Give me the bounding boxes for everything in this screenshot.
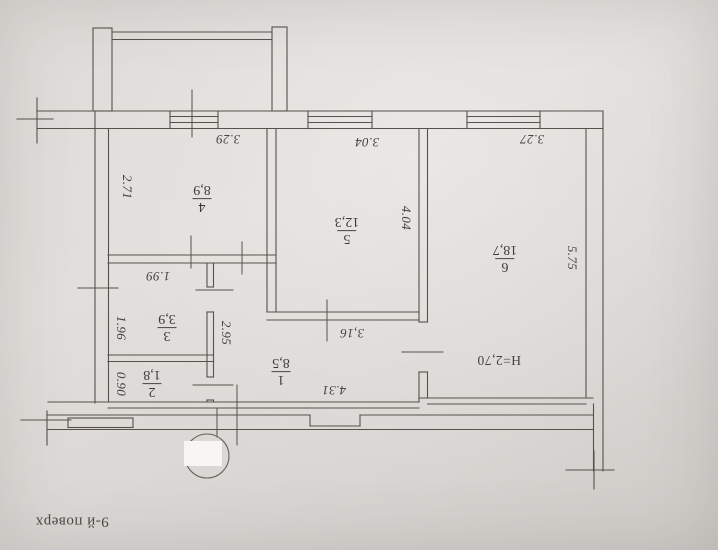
- balcony: [93, 27, 287, 111]
- dim-4-31: 4.31: [322, 382, 346, 398]
- dim-3-04: 3.04: [355, 134, 379, 150]
- room-1-number: 1: [272, 371, 291, 387]
- top-wall: [17, 98, 603, 143]
- dim-3-27: 3.27: [520, 131, 544, 147]
- plan-linework: [0, 0, 718, 550]
- room-4-area: 8,9: [193, 182, 211, 198]
- right-wall: [566, 111, 614, 489]
- room-5-area: 12,3: [335, 214, 360, 230]
- room-4-label: 4 8,9: [193, 182, 212, 214]
- room-1-label: 1 8,5: [272, 355, 291, 387]
- floor-plan-scan: 4 8,9 5 12,3 6 18,7 3 3,9 2 1,8 1 8,5 3.…: [0, 0, 718, 550]
- floor-note: 9-й поверх: [35, 513, 108, 530]
- left-wall: [95, 111, 109, 403]
- dim-3-29: 3.29: [216, 131, 240, 147]
- ceiling-height-note: H=2,70: [477, 352, 521, 368]
- dim-2-95: 2.95: [218, 321, 234, 345]
- room-5-number: 5: [338, 230, 357, 246]
- stamp: [184, 434, 229, 478]
- room-3-area: 3,9: [158, 311, 176, 327]
- dim-1-99: 1.99: [146, 268, 170, 284]
- redaction-patch: [184, 441, 222, 466]
- room-2-number: 2: [143, 383, 162, 399]
- room-3-label: 3 3,9: [158, 311, 177, 343]
- room-3-number: 3: [158, 327, 177, 343]
- dim-3-16: 3,16: [340, 325, 364, 341]
- dim-4-04: 4.04: [398, 206, 414, 230]
- room-6-number: 6: [496, 258, 515, 274]
- room-5-label: 5 12,3: [335, 214, 360, 246]
- windows: [170, 111, 540, 129]
- room-1-area: 8,5: [272, 355, 290, 371]
- dim-0-90: 0.90: [113, 372, 129, 396]
- room-6-area: 18,7: [493, 242, 518, 258]
- room-6-label: 6 18,7: [493, 242, 518, 274]
- room-2-area: 1,8: [143, 367, 161, 383]
- room-2-label: 2 1,8: [143, 367, 162, 399]
- dim-2-71: 2.71: [119, 175, 135, 199]
- room-4-number: 4: [193, 198, 212, 214]
- dim-5-75: 5.75: [564, 246, 580, 270]
- bottom-walls: [21, 398, 594, 445]
- dim-1-96: 1.96: [113, 316, 129, 340]
